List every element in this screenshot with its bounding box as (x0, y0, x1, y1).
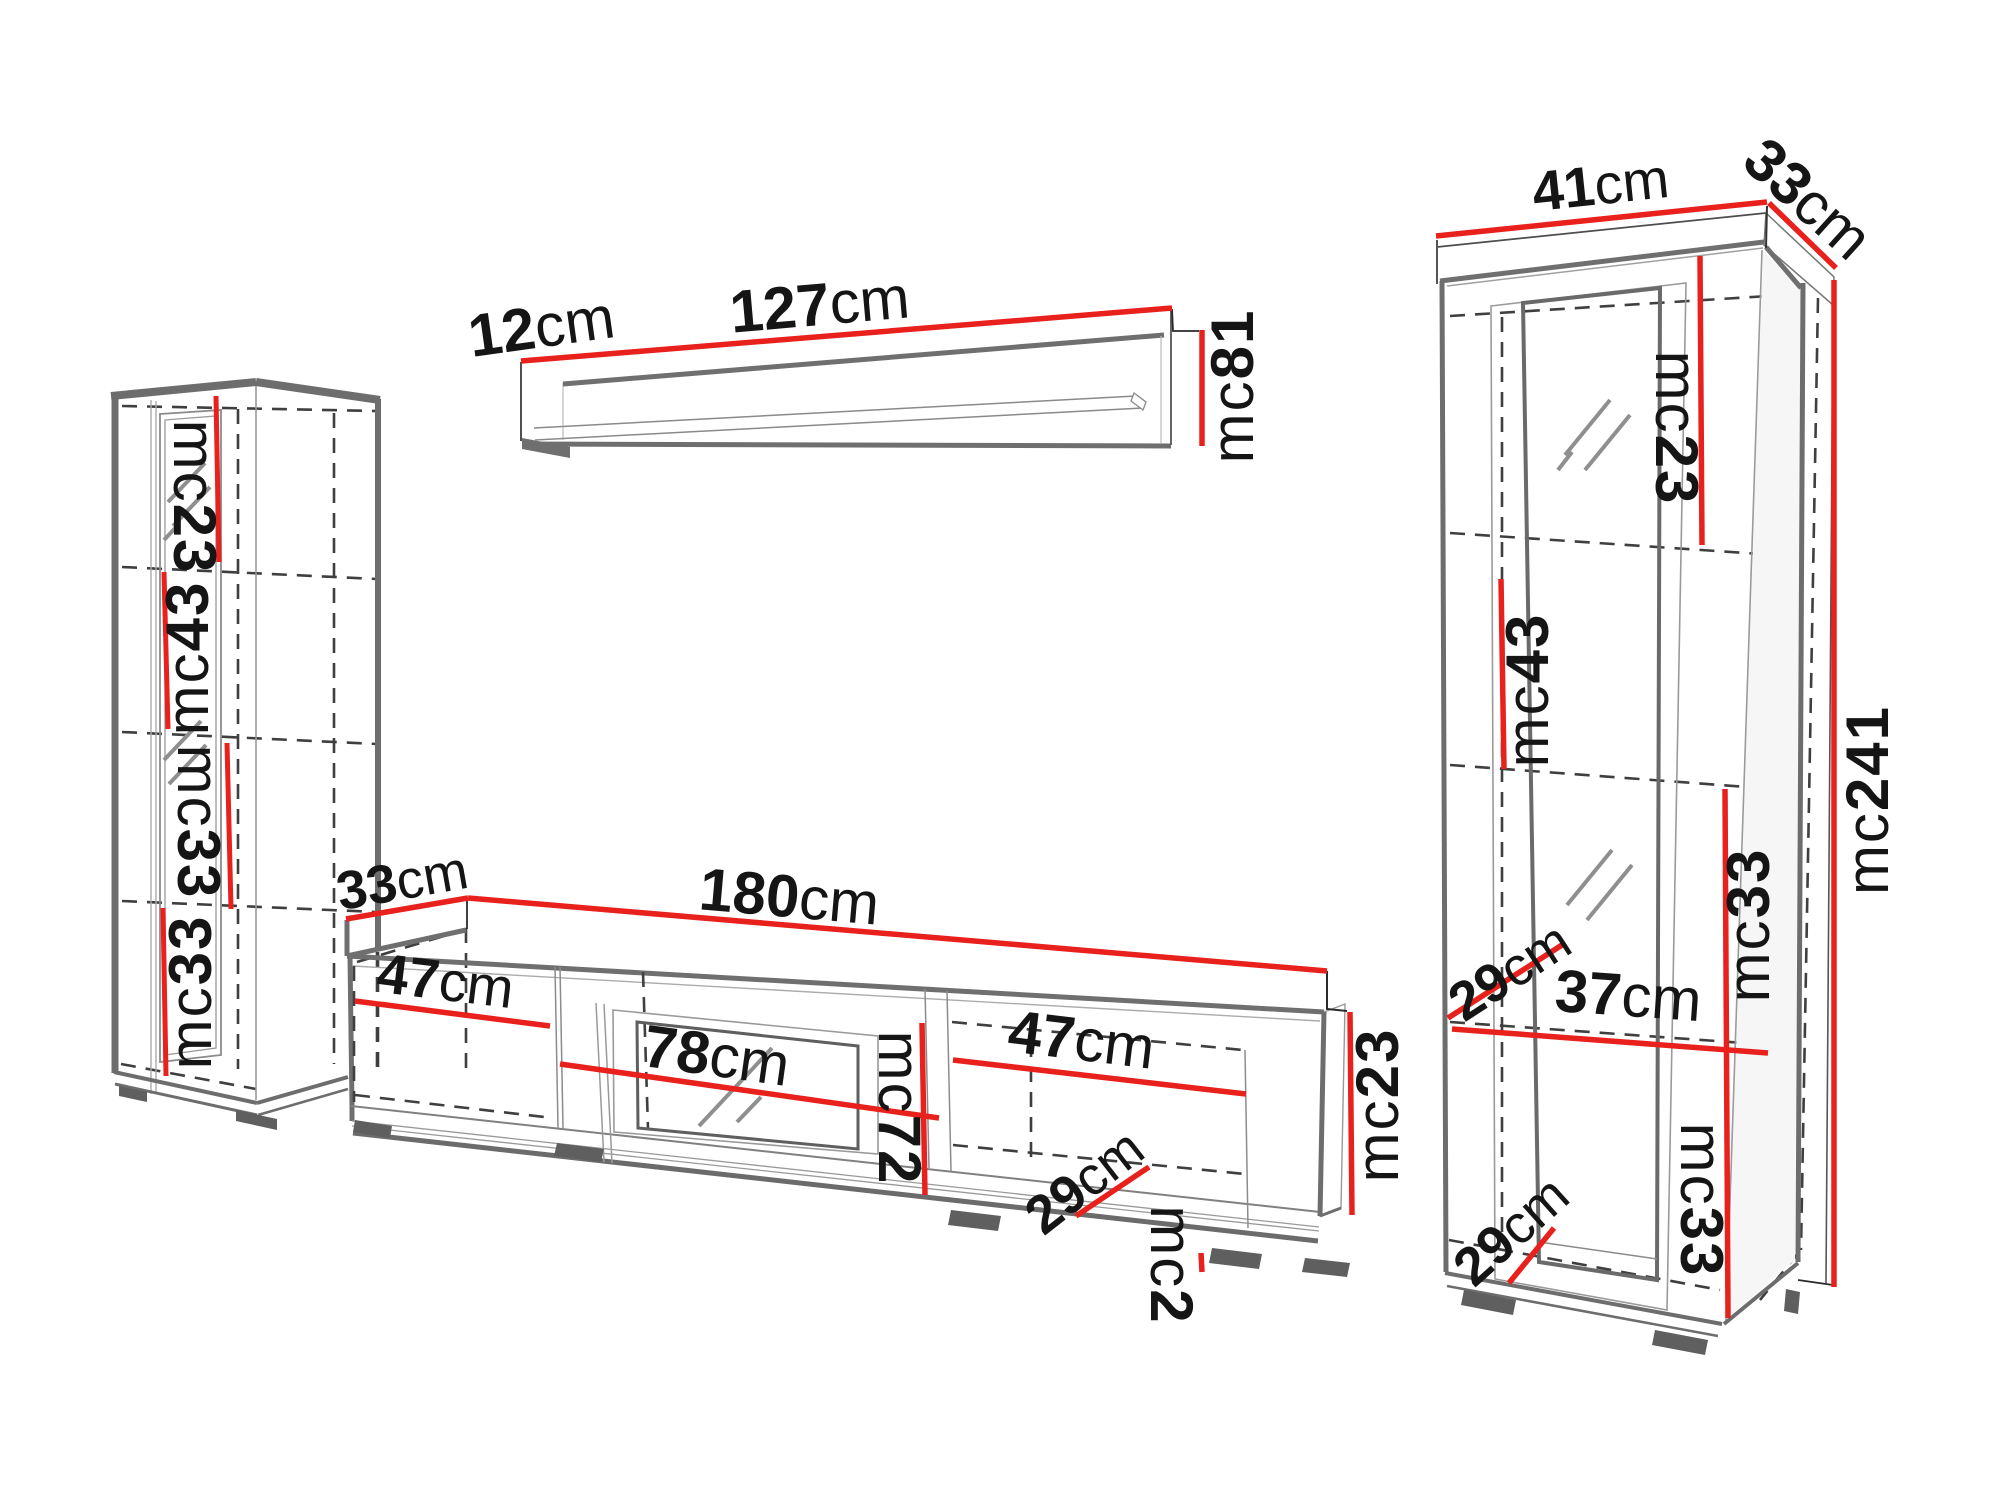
svg-text:mc241: mc241 (1834, 705, 1901, 895)
svg-text:mc2: mc2 (1138, 1205, 1205, 1324)
svg-text:mc23: mc23 (1643, 351, 1710, 506)
svg-text:mc33: mc33 (1715, 848, 1782, 1003)
svg-text:mc81: mc81 (1199, 309, 1266, 464)
svg-text:mc43: mc43 (1494, 613, 1561, 768)
svg-text:mc43: mc43 (154, 581, 221, 736)
svg-text:37cm: 37cm (1553, 957, 1704, 1034)
svg-text:mc23: mc23 (161, 420, 228, 575)
svg-text:mc23: mc23 (1344, 1028, 1411, 1183)
svg-text:mc33: mc33 (1668, 1123, 1735, 1278)
svg-text:mc72: mc72 (866, 1031, 933, 1186)
svg-text:mc33: mc33 (157, 915, 224, 1070)
svg-text:mc33: mc33 (165, 745, 232, 900)
